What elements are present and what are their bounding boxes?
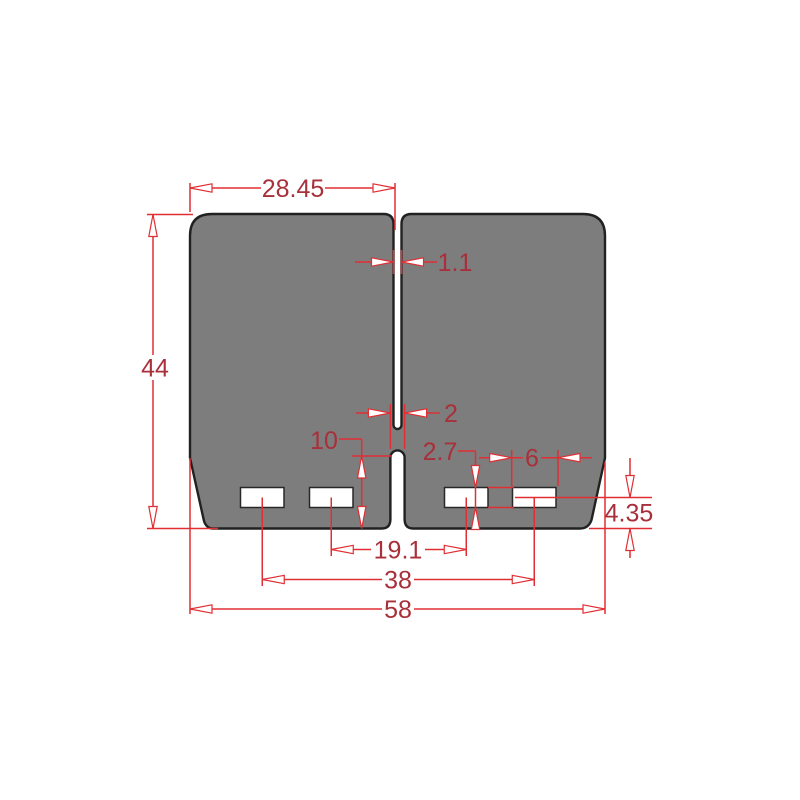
dim-label-overall-width: 58 xyxy=(384,596,412,624)
dim-label-outer-port-spacing: 38 xyxy=(384,567,412,595)
canvas-background xyxy=(0,0,800,800)
dim-label-overall-height: 44 xyxy=(141,355,169,383)
dim-label-bottom-slot-length: 10 xyxy=(310,427,338,455)
dim-label-bottom-slot-width: 2 xyxy=(444,400,458,428)
dim-label-petal-width: 28.45 xyxy=(262,175,325,203)
reed-petal-technical-drawing: 28.45 1.1 44 2 10 xyxy=(0,0,800,800)
dim-label-port-width: 6 xyxy=(525,445,539,473)
dim-label-port-center-to-bottom: 4.35 xyxy=(605,500,654,528)
dim-label-port-height: 2.7 xyxy=(423,438,458,466)
dim-label-inner-port-spacing: 19.1 xyxy=(374,537,423,565)
dim-label-top-slit-width: 1.1 xyxy=(438,249,473,277)
